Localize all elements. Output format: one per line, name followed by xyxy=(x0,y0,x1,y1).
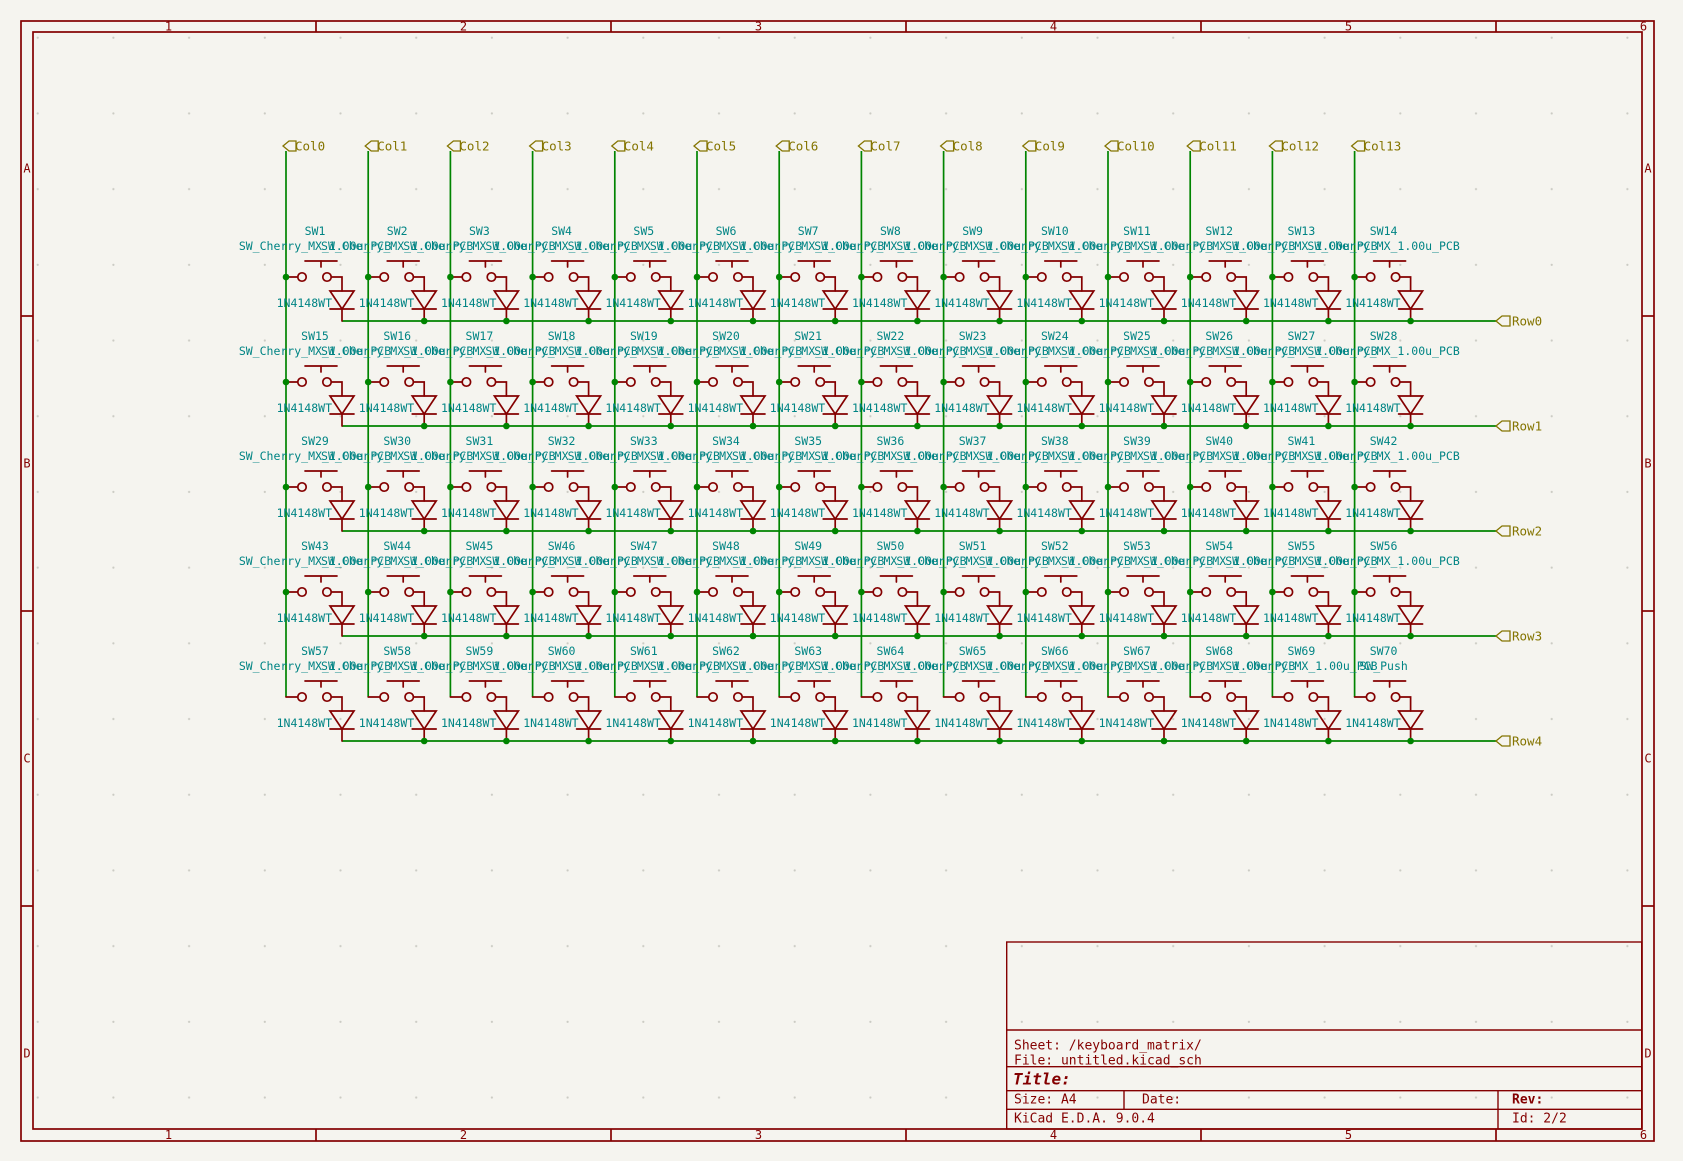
switch-ref-label[interactable]: SW26 xyxy=(1205,329,1233,343)
diode-value-label[interactable]: 1N4148WT xyxy=(359,716,414,730)
junction-dot xyxy=(996,318,1003,325)
diode-value-label[interactable]: 1N4148WT xyxy=(1099,506,1154,520)
diode-value-label[interactable]: 1N4148WT xyxy=(1181,401,1236,415)
col-label-8[interactable]: Col8 xyxy=(953,139,983,154)
switch-ref-label[interactable]: SW65 xyxy=(959,644,987,658)
junction-dot xyxy=(1187,589,1194,596)
junction-dot xyxy=(1407,738,1414,745)
junction-dot xyxy=(858,274,865,281)
junction-dot xyxy=(832,423,839,430)
diode-value-label[interactable]: 1N4148WT xyxy=(1345,611,1400,625)
diode-value-label[interactable]: 1N4148WT xyxy=(277,401,332,415)
junction-dot xyxy=(694,589,701,596)
row-label-0[interactable]: Row0 xyxy=(1512,314,1542,329)
junction-dot xyxy=(1407,528,1414,535)
switch-ref-label[interactable]: SW60 xyxy=(548,644,576,658)
junction-dot xyxy=(1325,633,1332,640)
diode-value-label[interactable]: 1N4148WT xyxy=(934,296,989,310)
junction-dot xyxy=(1187,484,1194,491)
junction-dot xyxy=(585,633,592,640)
switch-ref-label[interactable]: SW64 xyxy=(877,644,905,658)
diode-value-label[interactable]: 1N4148WT xyxy=(523,506,578,520)
col-label-12[interactable]: Col12 xyxy=(1281,139,1319,154)
switch-ref-label[interactable]: SW39 xyxy=(1123,434,1151,448)
switch-ref-label[interactable]: SW51 xyxy=(959,539,987,553)
diode-value-label[interactable]: 1N4148WT xyxy=(359,611,414,625)
sheet-zone-letter: C xyxy=(1644,752,1651,766)
diode-value-label[interactable]: 1N4148WT xyxy=(441,611,496,625)
switch-ref-label[interactable]: SW63 xyxy=(794,644,822,658)
sheet-zone-number: 6 xyxy=(1640,1128,1647,1142)
sheet-zone-letter: C xyxy=(23,752,30,766)
junction-dot xyxy=(503,423,510,430)
diode-value-label[interactable]: 1N4148WT xyxy=(1263,506,1318,520)
switch-ref-label[interactable]: SW12 xyxy=(1205,224,1233,238)
switch-ref-label[interactable]: SW8 xyxy=(880,224,901,238)
junction-dot xyxy=(1325,423,1332,430)
switch-ref-label[interactable]: SW3 xyxy=(469,224,490,238)
switch-ref-label[interactable]: SW46 xyxy=(548,539,576,553)
switch-value-label[interactable]: SW_Cherry_MX_1.00u_PCB xyxy=(1307,449,1459,463)
diode-value-label[interactable]: 1N4148WT xyxy=(1016,611,1071,625)
junction-dot xyxy=(1243,423,1250,430)
diode-value-label[interactable]: 1N4148WT xyxy=(605,401,660,415)
switch-ref-label[interactable]: SW52 xyxy=(1041,539,1069,553)
junction-dot xyxy=(694,274,701,281)
junction-dot xyxy=(1351,589,1358,596)
junction-dot xyxy=(1407,423,1414,430)
sheet-zone-letter: B xyxy=(23,457,30,471)
diode-value-label[interactable]: 1N4148WT xyxy=(934,401,989,415)
sheet-zone-number: 1 xyxy=(165,20,172,34)
switch-ref-label[interactable]: SW45 xyxy=(466,539,494,553)
editor-grid xyxy=(33,32,1642,1129)
switch-ref-label[interactable]: SW11 xyxy=(1123,224,1151,238)
junction-dot xyxy=(1105,274,1112,281)
switch-ref-label[interactable]: SW37 xyxy=(959,434,987,448)
switch-ref-label[interactable]: SW67 xyxy=(1123,644,1151,658)
titleblock-date: Date: xyxy=(1142,1093,1181,1108)
junction-dot xyxy=(421,318,428,325)
titleblock-id: Id: 2/2 xyxy=(1512,1112,1567,1127)
col-label-5[interactable]: Col5 xyxy=(706,139,736,154)
diode-value-label[interactable]: 1N4148WT xyxy=(1016,401,1071,415)
diode-value-label[interactable]: 1N4148WT xyxy=(934,716,989,730)
switch-ref-label[interactable]: SW54 xyxy=(1205,539,1233,553)
junction-dot xyxy=(668,318,675,325)
switch-ref-label[interactable]: SW49 xyxy=(794,539,822,553)
switch-ref-label[interactable]: SW25 xyxy=(1123,329,1151,343)
junction-dot xyxy=(776,484,783,491)
diode-value-label[interactable]: 1N4148WT xyxy=(441,401,496,415)
diode-value-label[interactable]: 1N4148WT xyxy=(523,401,578,415)
junction-dot xyxy=(283,589,290,596)
junction-dot xyxy=(503,633,510,640)
junction-dot xyxy=(365,379,372,386)
switch-ref-label[interactable]: SW18 xyxy=(548,329,576,343)
switch-value-label[interactable]: SW_Cherry_MX_1.00u_PCB xyxy=(1225,659,1377,673)
junction-dot xyxy=(832,318,839,325)
col-label-6[interactable]: Col6 xyxy=(788,139,818,154)
junction-dot xyxy=(668,633,675,640)
diode-value-label[interactable]: 1N4148WT xyxy=(688,296,743,310)
diode-value-label[interactable]: 1N4148WT xyxy=(1099,296,1154,310)
diode-value-label[interactable]: 1N4148WT xyxy=(523,611,578,625)
sheet-zone-number: 3 xyxy=(755,1128,762,1142)
junction-dot xyxy=(421,633,428,640)
switch-value-label[interactable]: SW_Cherry_MX_1.00u_PCB xyxy=(1307,344,1459,358)
junction-dot xyxy=(750,738,757,745)
switch-ref-label[interactable]: SW68 xyxy=(1205,644,1233,658)
switch-ref-label[interactable]: SW22 xyxy=(877,329,905,343)
junction-dot xyxy=(585,528,592,535)
junction-dot xyxy=(1325,318,1332,325)
junction-dot xyxy=(1105,484,1112,491)
switch-value-label[interactable]: SW_Cherry_MX_1.00u_PCB xyxy=(1307,239,1459,253)
switch-ref-label[interactable]: SW20 xyxy=(712,329,740,343)
switch-ref-label[interactable]: SW15 xyxy=(301,329,329,343)
diode-value-label[interactable]: 1N4148WT xyxy=(934,506,989,520)
switch-value-label[interactable]: SW_Push xyxy=(1359,659,1407,673)
junction-dot xyxy=(612,589,619,596)
col-label-3[interactable]: Col3 xyxy=(542,139,572,154)
junction-dot xyxy=(1023,274,1030,281)
junction-dot xyxy=(1269,379,1276,386)
junction-dot xyxy=(668,528,675,535)
col-label-2[interactable]: Col2 xyxy=(459,139,489,154)
junction-dot xyxy=(1351,484,1358,491)
diode-value-label[interactable]: 1N4148WT xyxy=(852,716,907,730)
diode-value-label[interactable]: 1N4148WT xyxy=(277,611,332,625)
sheet-zone-number: 5 xyxy=(1345,20,1352,34)
titleblock-title: Title: xyxy=(1013,1070,1071,1089)
diode-value-label[interactable]: 1N4148WT xyxy=(1016,506,1071,520)
junction-dot xyxy=(750,633,757,640)
switch-ref-label[interactable]: SW4 xyxy=(551,224,572,238)
junction-dot xyxy=(668,738,675,745)
junction-dot xyxy=(914,528,921,535)
switch-ref-label[interactable]: SW66 xyxy=(1041,644,1069,658)
switch-ref-label[interactable]: SW34 xyxy=(712,434,740,448)
junction-dot xyxy=(529,274,536,281)
switch-ref-label[interactable]: SW58 xyxy=(383,644,411,658)
switch-ref-label[interactable]: SW7 xyxy=(798,224,819,238)
junction-dot xyxy=(914,738,921,745)
switch-ref-label[interactable]: SW16 xyxy=(383,329,411,343)
switch-ref-label[interactable]: SW6 xyxy=(716,224,737,238)
diode-value-label[interactable]: 1N4148WT xyxy=(934,611,989,625)
sheet-zone-letter: B xyxy=(1644,457,1651,471)
junction-dot xyxy=(1351,379,1358,386)
col-label-0[interactable]: Col0 xyxy=(295,139,325,154)
diode-value-label[interactable]: 1N4148WT xyxy=(277,716,332,730)
diode-value-label[interactable]: 1N4148WT xyxy=(688,506,743,520)
diode-value-label[interactable]: 1N4148WT xyxy=(688,716,743,730)
switch-ref-label[interactable]: SW48 xyxy=(712,539,740,553)
junction-dot xyxy=(914,423,921,430)
sheet-zone-number: 4 xyxy=(1050,1128,1057,1142)
junction-dot xyxy=(750,528,757,535)
junction-dot xyxy=(447,484,454,491)
switch-ref-label[interactable]: SW62 xyxy=(712,644,740,658)
switch-ref-label[interactable]: SW14 xyxy=(1370,224,1398,238)
junction-dot xyxy=(1161,528,1168,535)
switch-ref-label[interactable]: SW2 xyxy=(387,224,408,238)
junction-dot xyxy=(447,274,454,281)
switch-ref-label[interactable]: SW44 xyxy=(383,539,411,553)
junction-dot xyxy=(940,589,947,596)
diode-value-label[interactable]: 1N4148WT xyxy=(1263,716,1318,730)
diode-value-label[interactable]: 1N4148WT xyxy=(770,716,825,730)
junction-dot xyxy=(832,528,839,535)
junction-dot xyxy=(612,274,619,281)
row-label-4[interactable]: Row4 xyxy=(1512,734,1542,749)
sheet-zone-number: 5 xyxy=(1345,1128,1352,1142)
diode-value-label[interactable]: 1N4148WT xyxy=(1181,611,1236,625)
junction-dot xyxy=(1269,589,1276,596)
junction-dot xyxy=(1023,484,1030,491)
diode-value-label[interactable]: 1N4148WT xyxy=(441,716,496,730)
switch-ref-label[interactable]: SW24 xyxy=(1041,329,1069,343)
switch-ref-label[interactable]: SW50 xyxy=(877,539,905,553)
diode-value-label[interactable]: 1N4148WT xyxy=(605,296,660,310)
switch-ref-label[interactable]: SW38 xyxy=(1041,434,1069,448)
switch-ref-label[interactable]: SW27 xyxy=(1288,329,1316,343)
switch-ref-label[interactable]: SW1 xyxy=(305,224,326,238)
diode-value-label[interactable]: 1N4148WT xyxy=(770,296,825,310)
row-label-3[interactable]: Row3 xyxy=(1512,629,1542,644)
switch-ref-label[interactable]: SW61 xyxy=(630,644,658,658)
switch-ref-label[interactable]: SW31 xyxy=(466,434,494,448)
junction-dot xyxy=(914,633,921,640)
junction-dot xyxy=(1079,633,1086,640)
switch-ref-label[interactable]: SW28 xyxy=(1370,329,1398,343)
diode-value-label[interactable]: 1N4148WT xyxy=(1016,296,1071,310)
junction-dot xyxy=(585,738,592,745)
junction-dot xyxy=(283,484,290,491)
junction-dot xyxy=(668,423,675,430)
junction-dot xyxy=(1243,633,1250,640)
row-label-2[interactable]: Row2 xyxy=(1512,524,1542,539)
diode-value-label[interactable]: 1N4148WT xyxy=(1345,506,1400,520)
junction-dot xyxy=(694,379,701,386)
switch-ref-label[interactable]: SW70 xyxy=(1370,644,1398,658)
titleblock-sheet: Sheet: /keyboard_matrix/ xyxy=(1014,1039,1202,1054)
junction-dot xyxy=(365,484,372,491)
junction-dot xyxy=(283,274,290,281)
junction-dot xyxy=(750,318,757,325)
junction-dot xyxy=(529,484,536,491)
junction-dot xyxy=(612,379,619,386)
junction-dot xyxy=(529,379,536,386)
junction-dot xyxy=(1243,318,1250,325)
switch-ref-label[interactable]: SW19 xyxy=(630,329,658,343)
schematic-canvas[interactable]: 112233445566AABBCCDDCol0Col1Col2Col3Col4… xyxy=(0,0,1683,1161)
switch-value-label[interactable]: SW_Cherry_MX_1.00u_PCB xyxy=(1307,554,1459,568)
junction-dot xyxy=(1023,379,1030,386)
diode-value-label[interactable]: 1N4148WT xyxy=(688,611,743,625)
junction-dot xyxy=(1351,274,1358,281)
switch-ref-label[interactable]: SW53 xyxy=(1123,539,1151,553)
switch-ref-label[interactable]: SW59 xyxy=(466,644,494,658)
junction-dot xyxy=(996,423,1003,430)
switch-ref-label[interactable]: SW57 xyxy=(301,644,329,658)
diode-value-label[interactable]: 1N4148WT xyxy=(852,611,907,625)
junction-dot xyxy=(1243,528,1250,535)
junction-dot xyxy=(914,318,921,325)
diode-value-label[interactable]: 1N4148WT xyxy=(523,296,578,310)
switch-ref-label[interactable]: SW9 xyxy=(962,224,983,238)
diode-value-label[interactable]: 1N4148WT xyxy=(441,506,496,520)
junction-dot xyxy=(365,274,372,281)
col-label-4[interactable]: Col4 xyxy=(624,139,654,154)
switch-ref-label[interactable]: SW47 xyxy=(630,539,658,553)
junction-dot xyxy=(1105,379,1112,386)
titleblock-size: Size: A4 xyxy=(1014,1093,1077,1108)
junction-dot xyxy=(503,528,510,535)
diode-value-label[interactable]: 1N4148WT xyxy=(1099,716,1154,730)
junction-dot xyxy=(421,528,428,535)
diode-value-label[interactable]: 1N4148WT xyxy=(852,296,907,310)
junction-dot xyxy=(940,484,947,491)
diode-value-label[interactable]: 1N4148WT xyxy=(1345,401,1400,415)
diode-value-label[interactable]: 1N4148WT xyxy=(441,296,496,310)
diode-value-label[interactable]: 1N4148WT xyxy=(1099,401,1154,415)
switch-ref-label[interactable]: SW33 xyxy=(630,434,658,448)
switch-ref-label[interactable]: SW42 xyxy=(1370,434,1398,448)
junction-dot xyxy=(365,589,372,596)
junction-dot xyxy=(1407,633,1414,640)
junction-dot xyxy=(940,274,947,281)
col-label-10[interactable]: Col10 xyxy=(1117,139,1155,154)
junction-dot xyxy=(421,738,428,745)
junction-dot xyxy=(996,528,1003,535)
junction-dot xyxy=(585,423,592,430)
diode-value-label[interactable]: 1N4148WT xyxy=(852,401,907,415)
junction-dot xyxy=(1187,379,1194,386)
junction-dot xyxy=(776,379,783,386)
junction-dot xyxy=(1325,738,1332,745)
sheet-zone-number: 4 xyxy=(1050,20,1057,34)
switch-ref-label[interactable]: SW69 xyxy=(1288,644,1316,658)
diode-value-label[interactable]: 1N4148WT xyxy=(770,506,825,520)
sheet-zone-letter: A xyxy=(1644,162,1652,176)
diode-value-label[interactable]: 1N4148WT xyxy=(1345,716,1400,730)
diode-value-label[interactable]: 1N4148WT xyxy=(770,611,825,625)
junction-dot xyxy=(1325,528,1332,535)
sheet-zone-number: 2 xyxy=(460,20,467,34)
switch-ref-label[interactable]: SW23 xyxy=(959,329,987,343)
diode-value-label[interactable]: 1N4148WT xyxy=(523,716,578,730)
junction-dot xyxy=(858,379,865,386)
col-label-9[interactable]: Col9 xyxy=(1035,139,1065,154)
switch-ref-label[interactable]: SW10 xyxy=(1041,224,1069,238)
diode-value-label[interactable]: 1N4148WT xyxy=(770,401,825,415)
junction-dot xyxy=(832,633,839,640)
switch-ref-label[interactable]: SW56 xyxy=(1370,539,1398,553)
switch-ref-label[interactable]: SW13 xyxy=(1288,224,1316,238)
diode-value-label[interactable]: 1N4148WT xyxy=(277,296,332,310)
col-label-7[interactable]: Col7 xyxy=(870,139,900,154)
sheet-zone-number: 1 xyxy=(165,1128,172,1142)
diode-value-label[interactable]: 1N4148WT xyxy=(605,506,660,520)
col-label-13[interactable]: Col13 xyxy=(1364,139,1402,154)
diode-value-label[interactable]: 1N4148WT xyxy=(605,611,660,625)
junction-dot xyxy=(1079,318,1086,325)
junction-dot xyxy=(1079,738,1086,745)
diode-value-label[interactable]: 1N4148WT xyxy=(277,506,332,520)
junction-dot xyxy=(447,589,454,596)
junction-dot xyxy=(776,274,783,281)
switch-ref-label[interactable]: SW21 xyxy=(794,329,822,343)
switch-ref-label[interactable]: SW30 xyxy=(383,434,411,448)
diode-value-label[interactable]: 1N4148WT xyxy=(1099,611,1154,625)
switch-ref-label[interactable]: SW36 xyxy=(877,434,905,448)
titleblock-file: File: untitled.kicad_sch xyxy=(1014,1054,1202,1069)
diode-value-label[interactable]: 1N4148WT xyxy=(1016,716,1071,730)
junction-dot xyxy=(612,484,619,491)
diode-value-label[interactable]: 1N4148WT xyxy=(359,401,414,415)
diode-value-label[interactable]: 1N4148WT xyxy=(605,716,660,730)
diode-value-label[interactable]: 1N4148WT xyxy=(1181,716,1236,730)
junction-dot xyxy=(996,738,1003,745)
row-label-1[interactable]: Row1 xyxy=(1512,419,1542,434)
sheet-zone-letter: D xyxy=(1644,1047,1651,1061)
sheet-zone-number: 3 xyxy=(755,20,762,34)
diode-value-label[interactable]: 1N4148WT xyxy=(1263,401,1318,415)
switch-ref-label[interactable]: SW17 xyxy=(466,329,494,343)
diode-value-label[interactable]: 1N4148WT xyxy=(1263,296,1318,310)
junction-dot xyxy=(776,589,783,596)
junction-dot xyxy=(1243,738,1250,745)
switch-ref-label[interactable]: SW40 xyxy=(1205,434,1233,448)
junction-dot xyxy=(1105,589,1112,596)
junction-dot xyxy=(503,738,510,745)
schematic-sheet: 112233445566AABBCCDDCol0Col1Col2Col3Col4… xyxy=(0,0,1683,1161)
diode-value-label[interactable]: 1N4148WT xyxy=(359,296,414,310)
switch-ref-label[interactable]: SW32 xyxy=(548,434,576,448)
junction-dot xyxy=(1187,274,1194,281)
switch-ref-label[interactable]: SW43 xyxy=(301,539,329,553)
diode-value-label[interactable]: 1N4148WT xyxy=(852,506,907,520)
col-label-1[interactable]: Col1 xyxy=(377,139,407,154)
sheet-zone-letter: A xyxy=(23,162,31,176)
switch-ref-label[interactable]: SW35 xyxy=(794,434,822,448)
junction-dot xyxy=(1269,484,1276,491)
junction-dot xyxy=(421,423,428,430)
switch-ref-label[interactable]: SW55 xyxy=(1288,539,1316,553)
diode-value-label[interactable]: 1N4148WT xyxy=(359,506,414,520)
junction-dot xyxy=(694,484,701,491)
diode-value-label[interactable]: 1N4148WT xyxy=(1181,506,1236,520)
diode-value-label[interactable]: 1N4148WT xyxy=(688,401,743,415)
sheet-zone-number: 2 xyxy=(460,1128,467,1142)
junction-dot xyxy=(940,379,947,386)
junction-dot xyxy=(1161,633,1168,640)
junction-dot xyxy=(858,484,865,491)
sheet-zone-number: 6 xyxy=(1640,20,1647,34)
col-label-11[interactable]: Col11 xyxy=(1199,139,1237,154)
junction-dot xyxy=(447,379,454,386)
diode-value-label[interactable]: 1N4148WT xyxy=(1345,296,1400,310)
junction-dot xyxy=(1161,738,1168,745)
switch-ref-label[interactable]: SW41 xyxy=(1288,434,1316,448)
switch-ref-label[interactable]: SW29 xyxy=(301,434,329,448)
switch-ref-label[interactable]: SW5 xyxy=(633,224,654,238)
diode-value-label[interactable]: 1N4148WT xyxy=(1263,611,1318,625)
junction-dot xyxy=(996,633,1003,640)
diode-value-label[interactable]: 1N4148WT xyxy=(1181,296,1236,310)
